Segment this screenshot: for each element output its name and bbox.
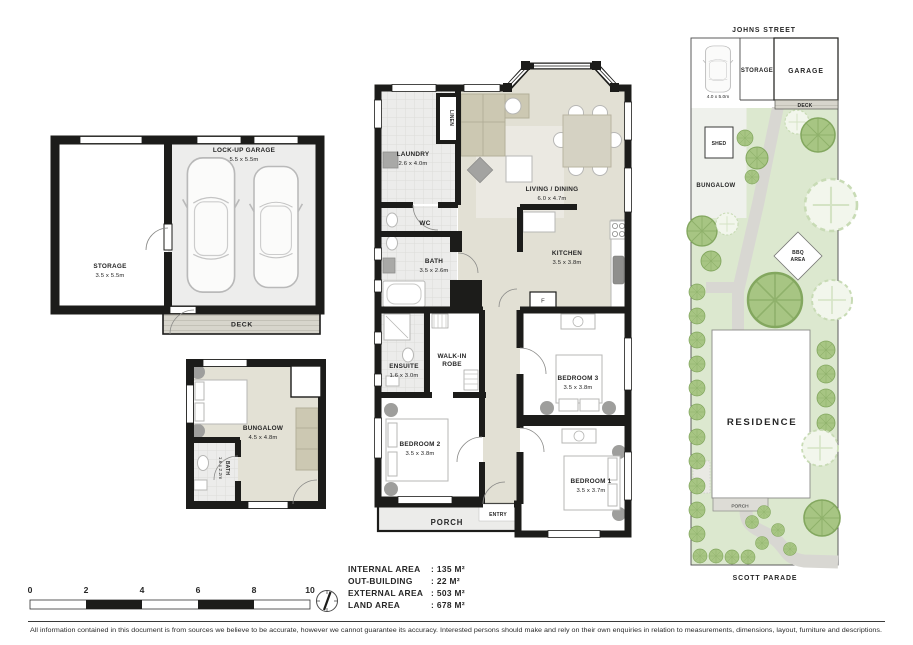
- street-label-johns: JOHNS STREET: [732, 27, 796, 34]
- wall-chunk: [450, 280, 482, 310]
- room-dims-bedroom2: 3.5 x 3.8m: [405, 451, 434, 457]
- tree-icon: [689, 356, 705, 372]
- tree-icon: [812, 280, 852, 320]
- window: [625, 338, 632, 390]
- room-dims-kitchen: 3.5 x 3.8m: [552, 260, 581, 266]
- room-label-walkin-robe: WALK-IN: [437, 353, 466, 360]
- scale-bar-segment: [86, 600, 142, 609]
- car-icon: [703, 46, 733, 92]
- scale-bar: 0 2 4 6 8 10: [28, 585, 315, 609]
- room-label-bungalow: BUNGALOW: [243, 425, 284, 432]
- area-row-label: LAND AREA: [348, 600, 400, 610]
- window: [625, 102, 632, 140]
- tree-icon: [804, 500, 840, 536]
- floorplan-canvas: STORAGE 3.5 x 5.5m LOCK-UP GARAGE 5.5 x …: [0, 0, 913, 645]
- sofa-icon: [296, 408, 318, 470]
- scale-tick-0: 0: [28, 585, 33, 595]
- scale-bar-segment: [198, 600, 254, 609]
- tree-icon: [801, 118, 835, 152]
- room-label-ensuite: ENSUITE: [389, 363, 419, 370]
- scale-tick-2: 2: [84, 585, 89, 595]
- room-label-walkin-robe2: ROBE: [442, 361, 462, 368]
- garage-floor-plan: STORAGE 3.5 x 5.5m LOCK-UP GARAGE 5.5 x …: [55, 137, 320, 335]
- car-icon: [250, 167, 303, 288]
- wall-post: [503, 83, 512, 92]
- window: [80, 137, 142, 144]
- shrub-icon: [784, 543, 797, 556]
- path: [706, 282, 734, 293]
- linen-closet: [438, 95, 458, 142]
- room-dims-lockup-garage: 5.5 x 5.5m: [229, 157, 258, 163]
- window: [375, 100, 382, 128]
- side-table-icon: [384, 403, 398, 417]
- door-arc: [457, 437, 482, 462]
- tree-icon: [746, 147, 768, 169]
- tree-icon: [689, 478, 705, 494]
- north-compass-icon: [317, 591, 338, 612]
- site-porch-label: PORCH: [731, 504, 749, 510]
- room-label-living-dining: LIVING / DINING: [526, 186, 579, 193]
- tree-icon: [689, 453, 705, 469]
- tree-icon: [687, 216, 717, 246]
- area-row-value: : 22 M²: [431, 576, 460, 586]
- bungalow-floor-plan: BUNGALOW 4.5 x 4.8m BATH 1.6 x 2.2m: [187, 360, 323, 509]
- window: [625, 168, 632, 212]
- room-label-bath: BATH: [425, 258, 443, 265]
- street-label-scott: SCOTT PARADE: [733, 575, 798, 582]
- window: [187, 385, 194, 423]
- window: [375, 280, 382, 292]
- disclaimer-text: All information contained in this docume…: [30, 627, 882, 634]
- scale-tick-6: 6: [196, 585, 201, 595]
- tree-icon: [817, 414, 835, 432]
- scale-tick-4: 4: [140, 585, 145, 595]
- site-shed-label: SHED: [712, 141, 727, 147]
- pillow: [608, 484, 617, 506]
- closet: [291, 366, 321, 397]
- main-floor-plan: F: [375, 61, 632, 538]
- room-dims-ensuite: 1.6 x 3.0m: [389, 373, 418, 379]
- pillow: [195, 382, 204, 400]
- coffee-table-icon: [506, 156, 532, 182]
- toilet-icon: [387, 213, 398, 227]
- scale-tick-8: 8: [252, 585, 257, 595]
- scale-bar-track: [30, 600, 310, 609]
- room-dims-bungalow: 4.5 x 4.8m: [248, 435, 277, 441]
- tree-icon: [805, 179, 857, 231]
- parking-dims: 4.0 x 5.0m: [707, 94, 729, 100]
- area-row-value: : 135 M²: [431, 564, 465, 574]
- area-row-label: EXTERNAL AREA: [348, 588, 423, 598]
- pillow: [388, 452, 397, 476]
- bathtub-icon: [383, 281, 425, 307]
- tree-icon: [689, 526, 705, 542]
- stove-icon: [610, 221, 627, 239]
- window: [375, 418, 382, 458]
- window: [625, 452, 632, 500]
- bbq-label-2: AREA: [791, 257, 806, 263]
- tree-icon: [716, 213, 738, 235]
- tree-icon: [745, 170, 759, 184]
- window: [392, 85, 436, 92]
- tree-icon: [689, 502, 705, 518]
- side-table-icon: [540, 401, 554, 415]
- room-label-bedroom3: BEDROOM 3: [558, 375, 599, 382]
- bungalow-area: [692, 108, 747, 218]
- window: [197, 137, 241, 144]
- tree-icon: [741, 550, 755, 564]
- site-residence-label: RESIDENCE: [727, 417, 797, 428]
- svg-text:BATH: BATH: [224, 461, 230, 476]
- room-dims-storage: 3.5 x 5.5m: [95, 273, 124, 279]
- wall-post: [592, 61, 601, 70]
- window: [464, 85, 500, 92]
- entry-label: ENTRY: [489, 512, 507, 518]
- fridge-label: F: [541, 299, 545, 305]
- area-summary: INTERNAL AREA : 135 M² OUT-BUILDING : 22…: [348, 564, 465, 610]
- tree-icon: [689, 380, 705, 396]
- room-dims-living-dining: 6.0 x 4.7m: [537, 196, 566, 202]
- room-label-lockup-garage: LOCK-UP GARAGE: [213, 147, 276, 154]
- shrub-icon: [758, 506, 771, 519]
- tree-icon: [725, 550, 739, 564]
- scale-tick-10: 10: [305, 585, 315, 595]
- shrub-icon: [746, 516, 759, 529]
- window: [548, 531, 600, 538]
- vanity-icon: [383, 258, 395, 273]
- room-label-bedroom1: BEDROOM 1: [571, 478, 612, 485]
- tree-icon: [737, 130, 753, 146]
- area-row-value: : 678 M²: [431, 600, 465, 610]
- svg-text:1.6 x 2.2m: 1.6 x 2.2m: [217, 457, 223, 479]
- tree-icon: [802, 430, 838, 466]
- site-storage-label: STORAGE: [741, 68, 773, 74]
- wall-post: [610, 83, 619, 92]
- shelf-icon: [464, 370, 478, 390]
- window: [398, 497, 452, 504]
- window: [254, 137, 298, 144]
- room-dims-bedroom3: 3.5 x 3.8m: [563, 385, 592, 391]
- room-label-storage: STORAGE: [93, 263, 127, 270]
- door-arc: [520, 348, 546, 374]
- bedroom-divider-wall: [517, 415, 628, 426]
- area-row-label: INTERNAL AREA: [348, 564, 420, 574]
- pillow: [608, 458, 617, 480]
- site-garage-label: GARAGE: [788, 68, 824, 75]
- tree-icon: [817, 341, 835, 359]
- sink-icon: [194, 480, 207, 490]
- room-dims-laundry: 2.6 x 4.0m: [398, 161, 427, 167]
- window: [248, 502, 288, 509]
- toilet-icon: [198, 456, 209, 471]
- window: [375, 374, 382, 386]
- room-dims-bath: 3.5 x 2.6m: [419, 268, 448, 274]
- toilet-icon: [387, 236, 398, 250]
- window: [375, 332, 382, 344]
- floorplan-document: STORAGE 3.5 x 5.5m LOCK-UP GARAGE 5.5 x …: [0, 0, 913, 645]
- wall-chunk: [450, 232, 462, 252]
- wall-post: [521, 61, 530, 70]
- kitchen-island-icon: [523, 212, 555, 232]
- room-label-kitchen: KITCHEN: [552, 250, 582, 257]
- tree-icon: [817, 389, 835, 407]
- tree-icon: [689, 308, 705, 324]
- door-arc: [520, 428, 544, 452]
- site-residence: [712, 330, 810, 498]
- side-table-icon: [602, 401, 616, 415]
- tree-icon: [709, 549, 723, 563]
- room-dims-bedroom1: 3.5 x 3.7m: [576, 488, 605, 494]
- tree-icon: [689, 429, 705, 445]
- room-label-laundry: LAUNDRY: [397, 151, 430, 158]
- site-deck-label: DECK: [798, 103, 813, 109]
- shrub-icon: [756, 537, 769, 550]
- porch-label: PORCH: [431, 518, 464, 527]
- dining-table-icon: [563, 115, 611, 167]
- shrub-icon: [772, 524, 785, 537]
- window: [375, 248, 382, 260]
- tree-icon: [689, 404, 705, 420]
- room-label-bedroom2: BEDROOM 2: [400, 441, 441, 448]
- site-bungalow-label: BUNGALOW: [696, 183, 735, 189]
- sink-icon: [613, 256, 624, 284]
- site-plan: JOHNS STREET 4.0 x 5.0m STORAGE GARAGE D…: [687, 27, 857, 582]
- tree-icon: [748, 273, 802, 327]
- area-row-value: : 503 M²: [431, 588, 465, 598]
- bed-foot: [580, 399, 599, 411]
- tree-icon: [701, 251, 721, 271]
- toilet-icon: [403, 348, 414, 362]
- area-row-label: OUT-BUILDING: [348, 576, 413, 586]
- side-table-icon: [505, 98, 521, 114]
- window: [203, 360, 247, 367]
- pillow: [388, 423, 397, 447]
- tree-icon: [693, 549, 707, 563]
- shelf-icon: [432, 314, 448, 328]
- deck-label: DECK: [231, 322, 253, 329]
- bbq-label-1: BBQ: [792, 250, 804, 256]
- pillow: [195, 403, 204, 421]
- car-icon: [183, 158, 240, 292]
- storage-room: [55, 140, 168, 310]
- tree-icon: [689, 332, 705, 348]
- room-label-wc: WC: [419, 220, 430, 227]
- room-label-linen: LINEN: [448, 110, 454, 126]
- bed-foot: [559, 399, 578, 411]
- side-table-icon: [384, 482, 398, 496]
- tree-icon: [817, 365, 835, 383]
- tree-icon: [689, 284, 705, 300]
